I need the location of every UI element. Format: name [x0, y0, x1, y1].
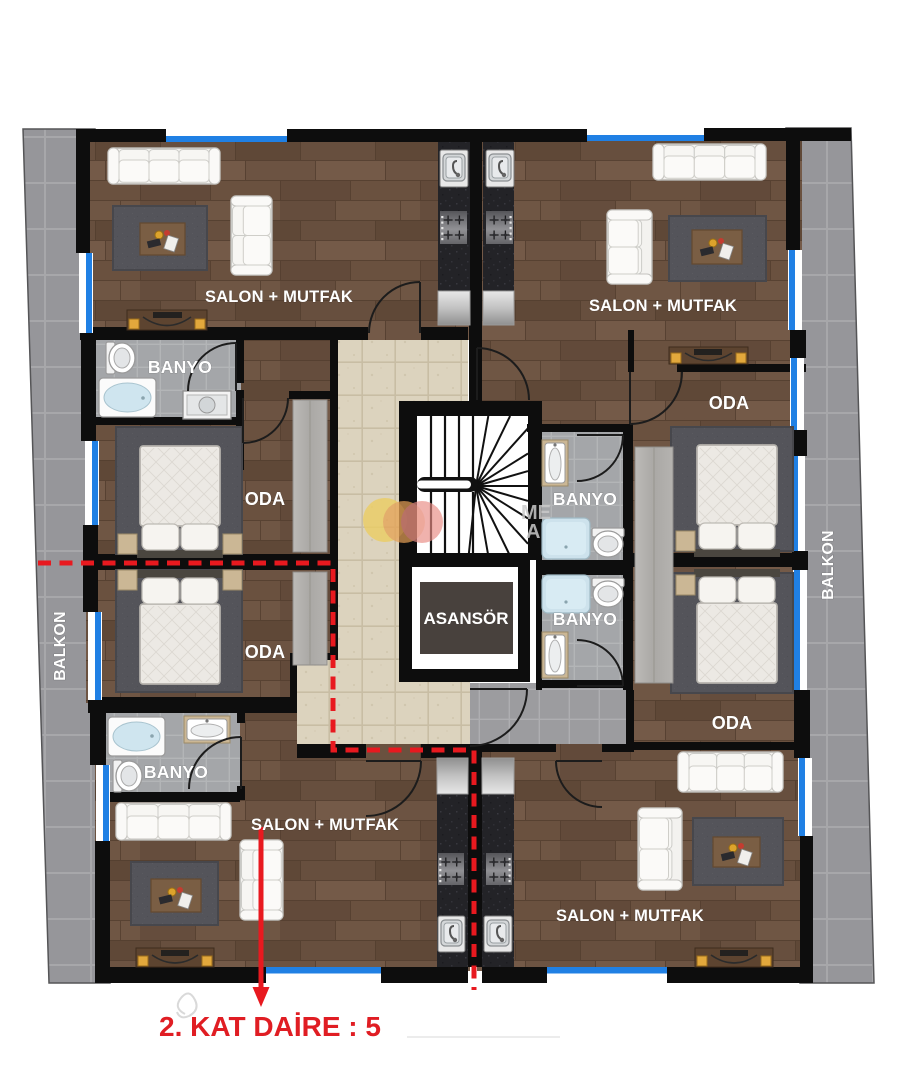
svg-text:BANYO: BANYO [148, 357, 212, 377]
svg-text:BALKON: BALKON [820, 530, 837, 600]
svg-text:ASANSÖR: ASANSÖR [423, 609, 508, 628]
svg-text:BANYO: BANYO [144, 762, 208, 782]
svg-text:BANYO: BANYO [553, 609, 617, 629]
svg-text:BANYO: BANYO [553, 489, 617, 509]
svg-text:2. KAT DAİRE : 5: 2. KAT DAİRE : 5 [159, 1011, 381, 1042]
svg-text:SALON + MUTFAK: SALON + MUTFAK [205, 288, 353, 306]
svg-text:ODA: ODA [712, 713, 753, 733]
svg-text:SALON + MUTFAK: SALON + MUTFAK [251, 816, 399, 834]
svg-text:BALKON: BALKON [52, 611, 69, 681]
svg-text:ODA: ODA [245, 489, 286, 509]
svg-text:SALON + MUTFAK: SALON + MUTFAK [556, 907, 704, 925]
svg-text:ODA: ODA [245, 642, 286, 662]
svg-text:SALON + MUTFAK: SALON + MUTFAK [589, 297, 737, 315]
svg-text:A: A [526, 521, 540, 543]
svg-text:ODA: ODA [709, 393, 750, 413]
